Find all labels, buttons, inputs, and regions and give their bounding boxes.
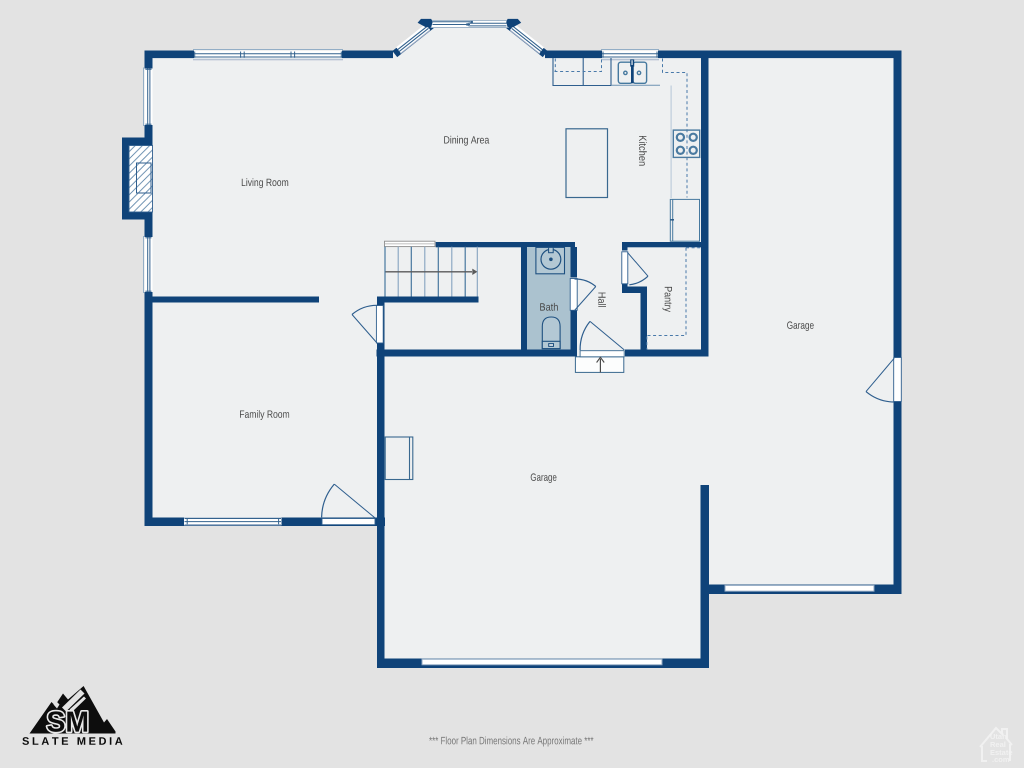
svg-text:.com: .com (992, 755, 1010, 764)
